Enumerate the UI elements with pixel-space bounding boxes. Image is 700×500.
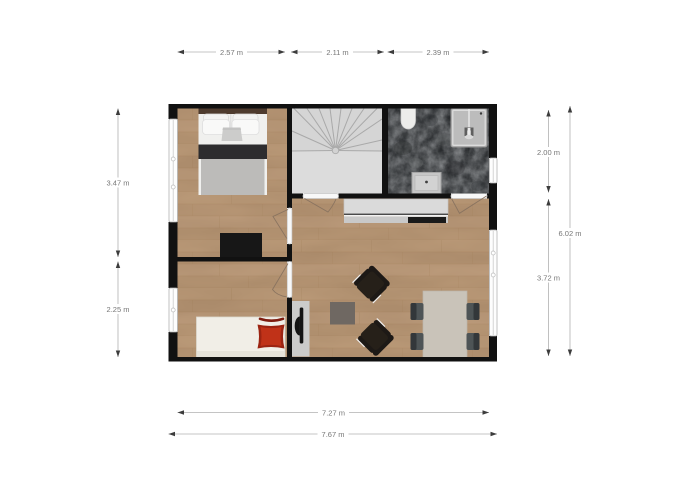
- svg-text:3.72 m: 3.72 m: [537, 273, 560, 282]
- svg-text:2.39 m: 2.39 m: [427, 48, 450, 57]
- svg-text:7.27 m: 7.27 m: [322, 408, 345, 417]
- svg-text:7.67 m: 7.67 m: [322, 430, 345, 439]
- svg-text:2.57 m: 2.57 m: [220, 48, 243, 57]
- svg-text:2.00 m: 2.00 m: [537, 148, 560, 157]
- svg-text:2.25 m: 2.25 m: [107, 305, 130, 314]
- svg-text:3.47 m: 3.47 m: [107, 178, 130, 187]
- svg-text:6.02 m: 6.02 m: [559, 229, 582, 238]
- svg-text:2.11 m: 2.11 m: [326, 48, 348, 57]
